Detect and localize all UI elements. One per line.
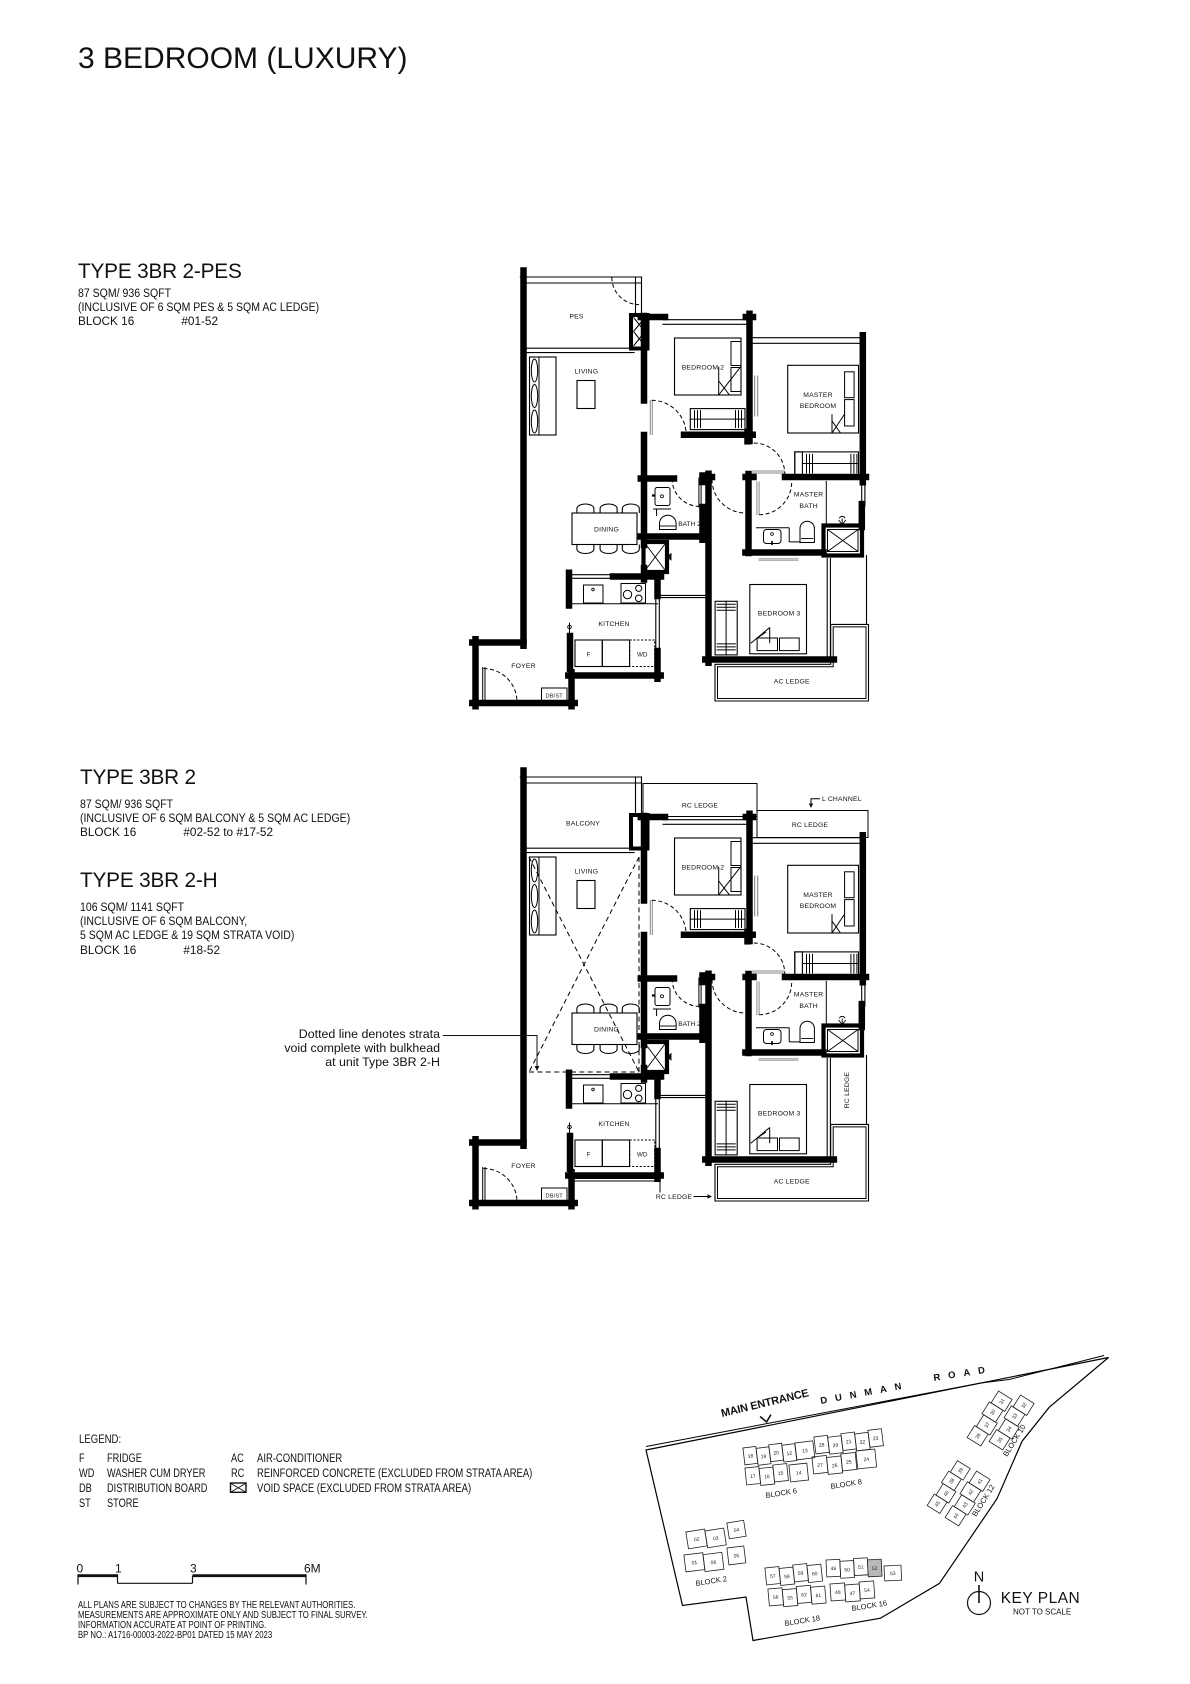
svg-text:19: 19 bbox=[761, 1454, 767, 1461]
svg-text:26: 26 bbox=[832, 1463, 838, 1470]
svg-text:6M: 6M bbox=[304, 1562, 321, 1576]
svg-text:BLOCK 2: BLOCK 2 bbox=[695, 1574, 728, 1588]
svg-text:MASTER: MASTER bbox=[794, 492, 824, 499]
svg-text:12: 12 bbox=[786, 1451, 792, 1458]
svg-text:05: 05 bbox=[733, 1553, 739, 1560]
svg-text:01: 01 bbox=[691, 1560, 697, 1567]
svg-text:16: 16 bbox=[764, 1474, 770, 1481]
svg-text:MAIN ENTRANCE: MAIN ENTRANCE bbox=[720, 1387, 810, 1420]
svg-text:52: 52 bbox=[872, 1566, 878, 1572]
svg-text:FOYER: FOYER bbox=[511, 1163, 535, 1170]
svg-text:WD: WD bbox=[637, 652, 648, 659]
svg-text:13: 13 bbox=[802, 1448, 808, 1455]
svg-text:BLOCK 16: BLOCK 16 bbox=[851, 1598, 888, 1612]
svg-text:BLOCK 12: BLOCK 12 bbox=[970, 1483, 997, 1518]
svg-text:PES: PES bbox=[569, 314, 583, 321]
svg-text:21: 21 bbox=[846, 1439, 852, 1446]
svg-text:24: 24 bbox=[863, 1457, 869, 1464]
svg-text:BEDROOM 2: BEDROOM 2 bbox=[682, 865, 725, 872]
svg-text:RC LEDGE: RC LEDGE bbox=[844, 1072, 851, 1109]
svg-text:55: 55 bbox=[787, 1595, 793, 1601]
svg-text:BEDROOM: BEDROOM bbox=[800, 403, 837, 410]
svg-text:03: 03 bbox=[713, 1535, 720, 1542]
svg-text:NOT TO SCALE: NOT TO SCALE bbox=[1013, 1608, 1071, 1617]
svg-text:AC LEDGE: AC LEDGE bbox=[774, 679, 810, 686]
svg-text:36: 36 bbox=[974, 1432, 982, 1440]
svg-text:MASTER: MASTER bbox=[794, 992, 824, 999]
svg-text:BATH: BATH bbox=[799, 1003, 817, 1010]
svg-text:RC LEDGE: RC LEDGE bbox=[682, 803, 719, 810]
svg-text:F: F bbox=[587, 1152, 591, 1159]
svg-text:41: 41 bbox=[976, 1478, 984, 1486]
svg-text:42: 42 bbox=[967, 1488, 975, 1496]
svg-text:53: 53 bbox=[890, 1571, 896, 1577]
svg-text:KITCHEN: KITCHEN bbox=[598, 621, 629, 628]
svg-text:39: 39 bbox=[957, 1467, 965, 1475]
svg-text:WD: WD bbox=[637, 1152, 648, 1159]
svg-text:27: 27 bbox=[817, 1462, 823, 1469]
svg-text:43: 43 bbox=[962, 1501, 970, 1509]
svg-text:DB/ST: DB/ST bbox=[545, 694, 563, 700]
svg-text:32: 32 bbox=[1020, 1402, 1028, 1410]
svg-text:BATH 2: BATH 2 bbox=[678, 1021, 701, 1028]
svg-text:DINING: DINING bbox=[594, 1027, 619, 1034]
svg-text:BALCONY: BALCONY bbox=[566, 821, 600, 828]
svg-text:DB/ST: DB/ST bbox=[545, 1194, 563, 1200]
svg-text:14: 14 bbox=[796, 1470, 802, 1477]
svg-text:62: 62 bbox=[801, 1592, 807, 1598]
svg-text:BEDROOM 2: BEDROOM 2 bbox=[682, 365, 725, 372]
svg-text:29: 29 bbox=[832, 1443, 838, 1450]
svg-text:37: 37 bbox=[984, 1421, 992, 1429]
svg-text:BEDROOM 3: BEDROOM 3 bbox=[758, 1110, 801, 1117]
svg-text:33: 33 bbox=[1011, 1412, 1019, 1420]
svg-text:44: 44 bbox=[952, 1512, 960, 1520]
svg-text:31: 31 bbox=[998, 1398, 1006, 1406]
svg-text:59: 59 bbox=[798, 1570, 804, 1577]
svg-text:58: 58 bbox=[784, 1574, 790, 1581]
svg-text:F: F bbox=[587, 652, 591, 659]
svg-text:61: 61 bbox=[815, 1593, 821, 1599]
svg-text:35: 35 bbox=[996, 1436, 1004, 1444]
svg-text:0: 0 bbox=[77, 1562, 84, 1576]
svg-text:MASTER: MASTER bbox=[803, 392, 833, 399]
svg-text:34: 34 bbox=[1006, 1425, 1014, 1433]
svg-text:DINING: DINING bbox=[594, 527, 619, 534]
svg-text:BLOCK 10: BLOCK 10 bbox=[1001, 1423, 1028, 1458]
svg-text:22: 22 bbox=[859, 1439, 865, 1446]
svg-text:56: 56 bbox=[773, 1595, 779, 1601]
svg-text:25: 25 bbox=[846, 1459, 852, 1466]
svg-text:17: 17 bbox=[750, 1473, 756, 1480]
svg-text:DUNMAN: DUNMAN bbox=[820, 1380, 911, 1407]
svg-text:KITCHEN: KITCHEN bbox=[598, 1121, 629, 1128]
svg-text:BEDROOM: BEDROOM bbox=[800, 903, 837, 910]
svg-text:38: 38 bbox=[948, 1477, 956, 1485]
svg-text:MASTER: MASTER bbox=[803, 892, 833, 899]
svg-text:LIVING: LIVING bbox=[575, 369, 599, 376]
svg-text:18: 18 bbox=[747, 1453, 753, 1460]
svg-text:1: 1 bbox=[115, 1562, 122, 1576]
svg-text:BLOCK 18: BLOCK 18 bbox=[784, 1613, 821, 1627]
svg-text:60: 60 bbox=[812, 1571, 818, 1578]
svg-text:30: 30 bbox=[989, 1408, 997, 1416]
svg-text:BATH 2: BATH 2 bbox=[678, 521, 701, 528]
svg-text:06: 06 bbox=[710, 1560, 716, 1567]
svg-text:02: 02 bbox=[693, 1536, 700, 1543]
svg-text:BLOCK 6: BLOCK 6 bbox=[765, 1486, 798, 1500]
svg-text:3: 3 bbox=[190, 1562, 197, 1576]
svg-text:04: 04 bbox=[733, 1527, 740, 1534]
svg-text:48: 48 bbox=[835, 1590, 841, 1596]
svg-text:BLOCK 8: BLOCK 8 bbox=[830, 1477, 863, 1491]
svg-text:23: 23 bbox=[873, 1436, 879, 1443]
svg-text:N: N bbox=[974, 1570, 984, 1586]
svg-text:49: 49 bbox=[830, 1566, 836, 1572]
svg-text:KEY PLAN: KEY PLAN bbox=[1001, 1590, 1081, 1607]
svg-text:RC LEDGE: RC LEDGE bbox=[792, 822, 829, 829]
svg-text:54: 54 bbox=[864, 1588, 870, 1594]
svg-text:46: 46 bbox=[943, 1490, 951, 1498]
svg-text:45: 45 bbox=[934, 1500, 942, 1508]
svg-text:RC LEDGE: RC LEDGE bbox=[656, 1194, 693, 1201]
svg-text:BEDROOM 3: BEDROOM 3 bbox=[758, 610, 801, 617]
svg-text:15: 15 bbox=[778, 1470, 784, 1477]
svg-text:L CHANNEL: L CHANNEL bbox=[822, 796, 862, 803]
svg-text:20: 20 bbox=[773, 1450, 779, 1457]
svg-text:ROAD: ROAD bbox=[933, 1364, 994, 1384]
svg-text:BATH: BATH bbox=[799, 503, 817, 510]
svg-text:28: 28 bbox=[819, 1442, 825, 1449]
svg-text:FOYER: FOYER bbox=[511, 663, 535, 670]
svg-text:47: 47 bbox=[850, 1591, 856, 1597]
svg-text:50: 50 bbox=[844, 1567, 850, 1573]
svg-text:AC LEDGE: AC LEDGE bbox=[774, 1179, 810, 1186]
svg-text:LIVING: LIVING bbox=[575, 869, 599, 876]
svg-text:57: 57 bbox=[770, 1573, 776, 1580]
svg-text:51: 51 bbox=[858, 1565, 864, 1571]
